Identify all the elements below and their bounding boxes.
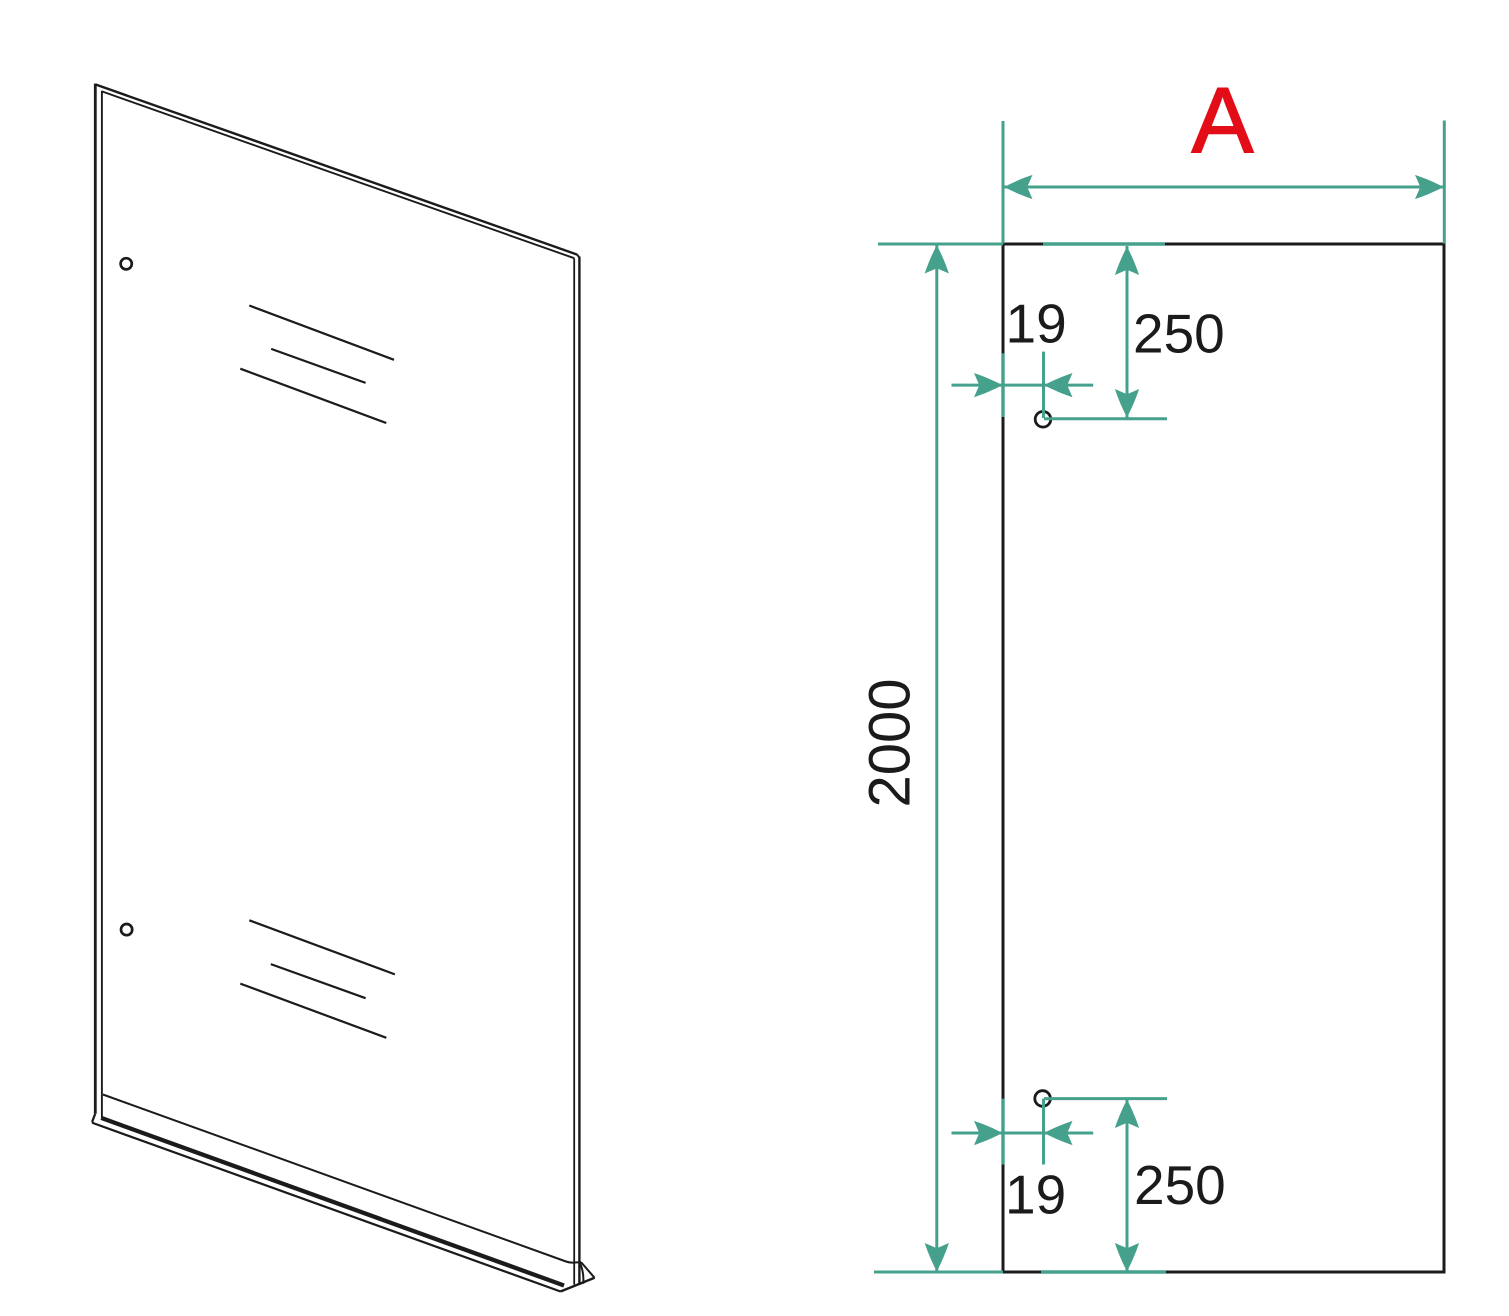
svg-text:19: 19 (1005, 1164, 1066, 1226)
svg-text:250: 250 (1133, 303, 1225, 365)
svg-text:19: 19 (1006, 293, 1067, 355)
svg-text:A: A (1191, 68, 1253, 172)
svg-text:2000: 2000 (858, 678, 923, 807)
svg-text:250: 250 (1134, 1154, 1226, 1216)
